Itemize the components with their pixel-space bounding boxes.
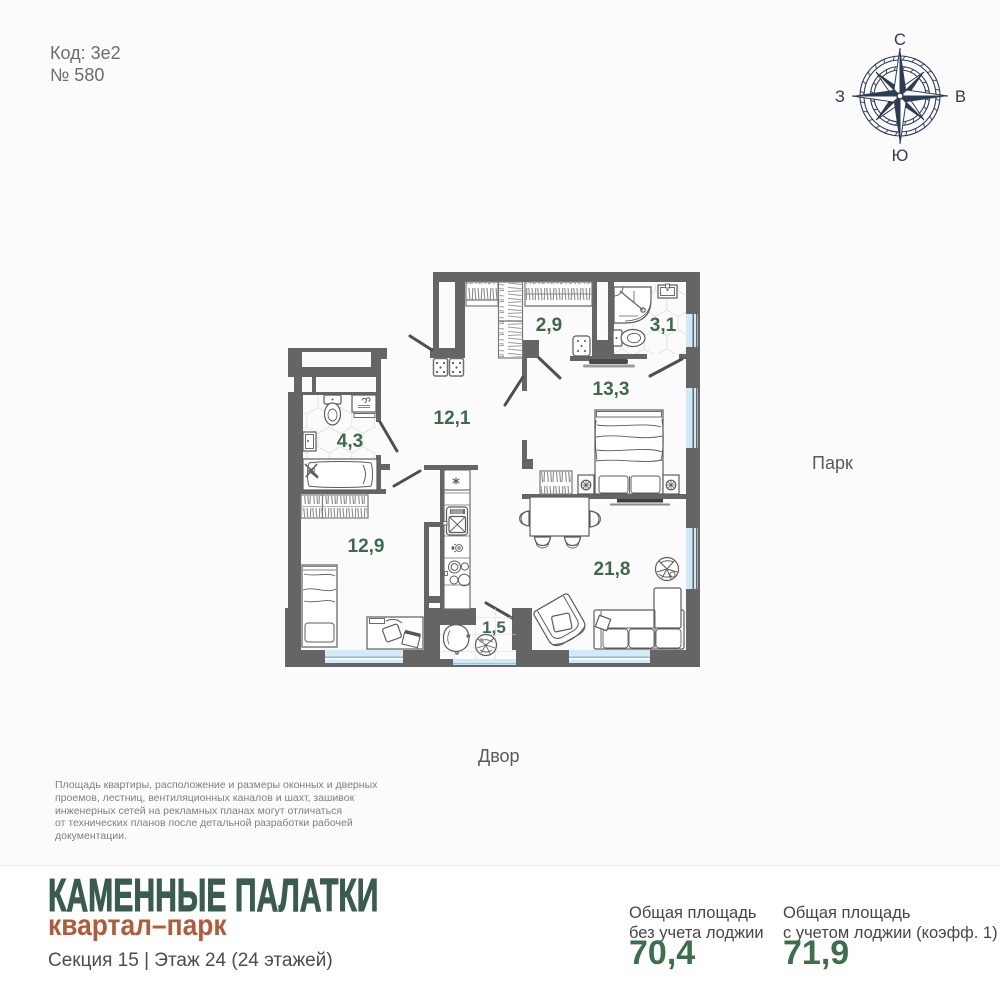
svg-text:12,9: 12,9 — [348, 536, 385, 557]
svg-text:13,3: 13,3 — [593, 379, 630, 400]
svg-text:4,3: 4,3 — [337, 431, 363, 452]
svg-text:В: В — [955, 88, 966, 106]
svg-text:2,9: 2,9 — [536, 315, 562, 336]
svg-text:Ю: Ю — [892, 147, 909, 165]
svg-text:З: З — [835, 88, 845, 106]
svg-text:21,8: 21,8 — [594, 559, 631, 580]
svg-text:3,1: 3,1 — [650, 315, 677, 336]
svg-text:1,5: 1,5 — [482, 618, 506, 637]
svg-text:С: С — [894, 31, 906, 49]
svg-text:12,1: 12,1 — [434, 408, 471, 429]
